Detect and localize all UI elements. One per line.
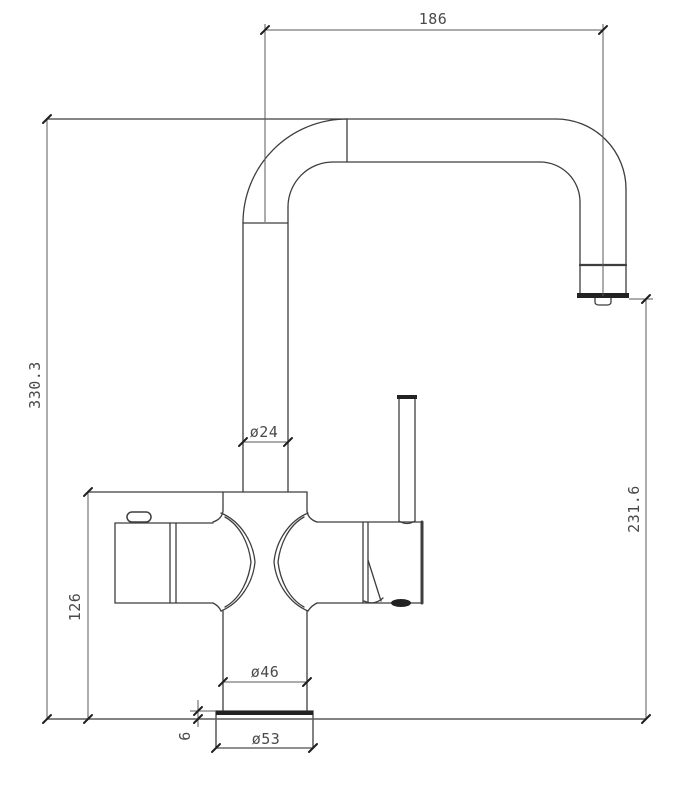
deck-right-drop	[307, 492, 317, 522]
spout-bend-inner-arc	[288, 162, 333, 207]
spout-bend-outer-arc	[243, 119, 347, 223]
dimension-labels: 186 ø24 ø46 ø53 330.3 231.6 126 6	[26, 10, 643, 748]
right-block-joint-lines	[363, 522, 368, 603]
base-plate-top-band	[216, 711, 313, 715]
handle-base-diagonal	[368, 560, 381, 601]
dim-base-diameter-label: ø53	[252, 730, 281, 748]
technical-drawing-page: 186 ø24 ø46 ø53 330.3 231.6 126 6	[0, 0, 686, 792]
dim-base-plate-height-label: 6	[176, 731, 194, 741]
center-cone-right-inner	[278, 517, 304, 607]
left-block-outline	[115, 523, 213, 603]
outlet-bend-inner-arc	[540, 162, 580, 202]
handle-pivot-nub	[391, 599, 411, 607]
faucet-dark-details	[216, 293, 629, 715]
dim-outlet-height-label: 231.6	[625, 485, 643, 533]
deck-left-drop	[213, 492, 223, 522]
left-block-joint-lines	[170, 523, 176, 603]
dim-spout-reach-line	[265, 24, 603, 296]
outlet-bend-outer-arc	[556, 119, 626, 189]
handle-rod-cap	[397, 395, 417, 399]
dimension-lines	[47, 24, 653, 748]
dim-body-height-label: 126	[66, 593, 84, 622]
faucet-technical-drawing: 186 ø24 ø46 ø53 330.3 231.6 126 6	[0, 0, 686, 792]
dim-spout-reach-label: 186	[419, 10, 448, 28]
handle-rod-edges	[399, 399, 415, 521]
center-cone-left-inner	[225, 517, 251, 607]
neck-edges	[223, 611, 307, 711]
dim-spout-tube-diameter-label: ø24	[250, 423, 279, 441]
dim-total-height-label: 330.3	[26, 361, 44, 409]
left-block-button	[127, 512, 151, 522]
aerator-nub	[595, 298, 611, 305]
faucet-outline	[47, 119, 626, 748]
dim-neck-diameter-label: ø46	[251, 663, 280, 681]
